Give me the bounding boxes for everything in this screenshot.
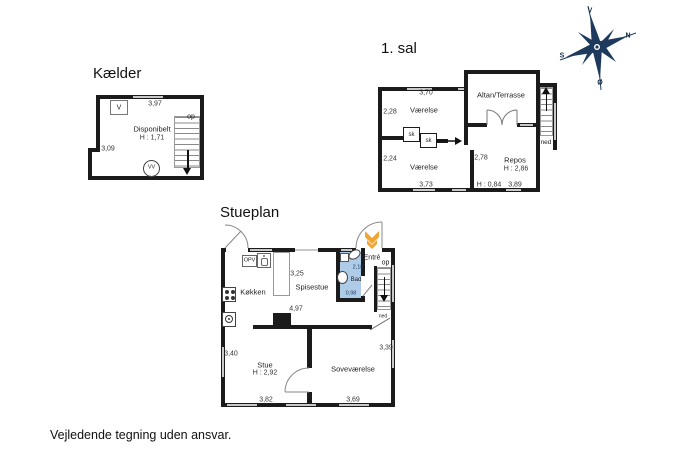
compass-east-label: Ø [597,80,602,87]
ff-altan-door-arc-right [502,110,517,125]
sp-bath-door-leaf [363,285,372,296]
sp-stue-door-arc [285,368,309,392]
sp-sove-door-leaf [370,318,390,330]
kaelder-boiler-label: VV [148,165,155,171]
ff-door-pivot-head [455,137,462,145]
ff-altan-door-arc-left [487,110,502,125]
compass-south-label: S [560,53,565,60]
sp-topleft-door-leaf [225,231,241,248]
compass-north-label: N [625,33,630,40]
floorplan-page: Kælder V VV 3,97 op Disponibelt H : 1,71… [0,0,687,457]
compass-west-label: V [588,8,593,15]
disclaimer-text: Vejledende tegning uden ansvar. [50,428,231,442]
